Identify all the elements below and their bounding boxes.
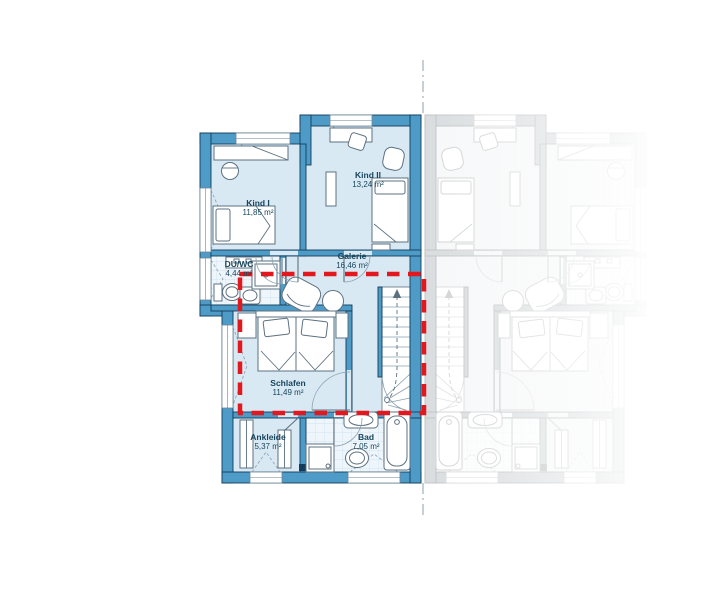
main-unit bbox=[200, 115, 421, 483]
floor-plan-drawing bbox=[0, 0, 714, 600]
adjacent-unit-ghost bbox=[425, 115, 646, 483]
floor-plan: Kind I 11,85 m² Kind II 13,24 m² Galerie… bbox=[0, 0, 714, 600]
